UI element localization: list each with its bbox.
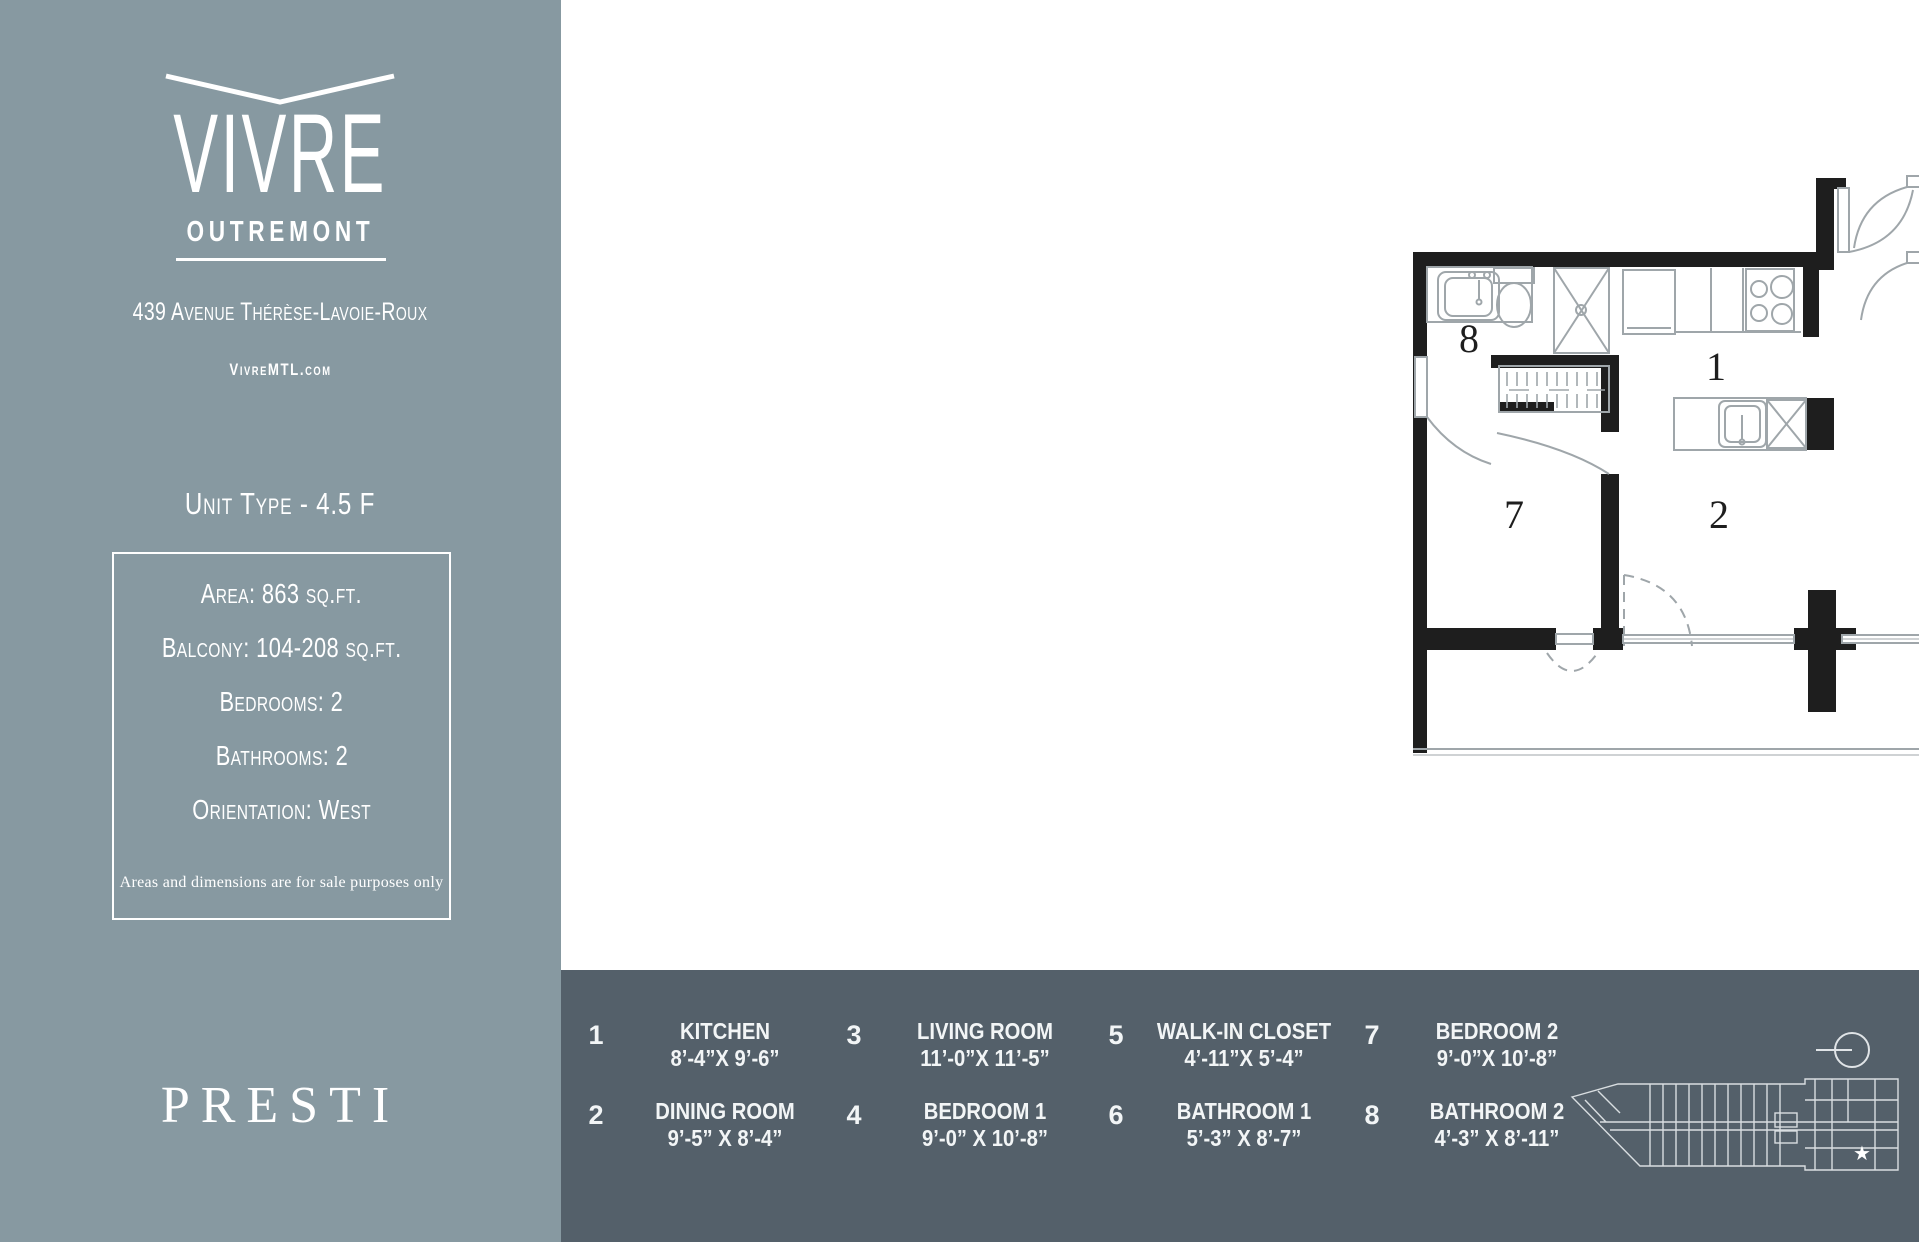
legend-room-name: BEDROOM 2 <box>1402 1018 1592 1045</box>
legend-item-dining-room: 2DINING ROOM9’-5” X 8’-4” <box>579 1098 837 1178</box>
legend-info: KITCHEN8’-4”X 9’-6” <box>626 1018 823 1072</box>
room-label-kitchen: 1 <box>1706 344 1726 389</box>
legend-item-living-room: 3LIVING ROOM11’-0”X 11’-5” <box>837 1018 1099 1098</box>
room-label-dining: 2 <box>1709 492 1729 537</box>
spec-bedrooms: Bedrooms: 2 <box>114 686 449 718</box>
legend-room-name: BEDROOM 1 <box>885 1098 1086 1125</box>
spec-area: Area: 863 sq.ft. <box>114 578 449 610</box>
legend-number: 1 <box>579 1018 613 1051</box>
spec-box: Area: 863 sq.ft. Balcony: 104-208 sq.ft.… <box>112 552 451 920</box>
legend-item-walk-in-closet: 5WALK-IN CLOSET4’-11”X 5’-4” <box>1099 1018 1355 1098</box>
room-label-bathroom2: 8 <box>1459 316 1479 361</box>
spec-balcony: Balcony: 104-208 sq.ft. <box>114 632 449 664</box>
legend-item-kitchen: 1KITCHEN8’-4”X 9’-6” <box>579 1018 837 1098</box>
legend-info: DINING ROOM9’-5” X 8’-4” <box>626 1098 823 1152</box>
legend-room-dimensions: 4’-11”X 5’-4” <box>1146 1045 1341 1072</box>
building-footprint <box>1572 1079 1898 1170</box>
legend-room-name: LIVING ROOM <box>885 1018 1086 1045</box>
unit-location-star-icon: ★ <box>1853 1143 1871 1165</box>
floor-plan-drawing: 1 2 3 4 5 6 7 8 <box>1406 148 1919 788</box>
legend-info: LIVING ROOM11’-0”X 11’-5” <box>885 1018 1086 1072</box>
legend-room-name: KITCHEN <box>626 1018 823 1045</box>
legend-info: BATHROOM 24’-3” X 8’-11” <box>1402 1098 1592 1152</box>
legend-room-dimensions: 9’-0”X 10’-8” <box>1402 1045 1592 1072</box>
legend-info: WALK-IN CLOSET4’-11”X 5’-4” <box>1146 1018 1341 1072</box>
address: 439 Avenue Thérèse-Lavoie-Roux <box>0 298 561 327</box>
legend-number: 7 <box>1355 1018 1389 1051</box>
legend-number: 8 <box>1355 1098 1389 1131</box>
sidebar: VIVRE OUTREMONT 439 Avenue Thérèse-Lavoi… <box>0 0 561 1242</box>
legend-footer: 1KITCHEN8’-4”X 9’-6”3LIVING ROOM11’-0”X … <box>561 970 1919 1242</box>
floor-plan-area: 1 2 3 4 5 6 7 8 <box>561 0 1919 970</box>
legend-number: 4 <box>837 1098 871 1131</box>
legend-room-dimensions: 4’-3” X 8’-11” <box>1402 1125 1592 1152</box>
legend-grid: 1KITCHEN8’-4”X 9’-6”3LIVING ROOM11’-0”X … <box>579 1018 1605 1178</box>
legend-room-dimensions: 8’-4”X 9’-6” <box>626 1045 823 1072</box>
legend-room-dimensions: 9’-5” X 8’-4” <box>626 1125 823 1152</box>
plan-room-numbers: 1 2 3 4 5 6 7 8 <box>1459 226 1919 537</box>
logo-title: VIVRE <box>0 98 561 210</box>
disclaimer: Areas and dimensions are for sale purpos… <box>114 874 449 892</box>
legend-room-name: BATHROOM 2 <box>1402 1098 1592 1125</box>
legend-room-dimensions: 5’-3” X 8’-7” <box>1146 1125 1341 1152</box>
legend-room-name: BATHROOM 1 <box>1146 1098 1341 1125</box>
website-link[interactable]: VivreMTL.com <box>0 360 561 380</box>
legend-number: 6 <box>1099 1098 1133 1131</box>
legend-item-bedroom-1: 4BEDROOM 19’-0” X 10’-8” <box>837 1098 1099 1178</box>
unit-type-title: Unit Type - 4.5 F <box>0 486 561 522</box>
legend-item-bathroom-1: 6BATHROOM 15’-3” X 8’-7” <box>1099 1098 1355 1178</box>
spec-orientation: Orientation: West <box>114 794 449 826</box>
legend-room-dimensions: 9’-0” X 10’-8” <box>885 1125 1086 1152</box>
legend-room-name: DINING ROOM <box>626 1098 823 1125</box>
legend-info: BEDROOM 29’-0”X 10’-8” <box>1402 1018 1592 1072</box>
legend-number: 3 <box>837 1018 871 1051</box>
logo-rule <box>176 258 386 261</box>
legend-number: 5 <box>1099 1018 1133 1051</box>
legend-item-bedroom-2: 7BEDROOM 29’-0”X 10’-8” <box>1355 1018 1605 1098</box>
legend-info: BEDROOM 19’-0” X 10’-8” <box>885 1098 1086 1152</box>
spec-bathrooms: Bathrooms: 2 <box>114 740 449 772</box>
legend-room-name: WALK-IN CLOSET <box>1146 1018 1341 1045</box>
legend-item-bathroom-2: 8BATHROOM 24’-3” X 8’-11” <box>1355 1098 1605 1178</box>
room-label-bedroom2: 7 <box>1504 492 1524 537</box>
legend-info: BATHROOM 15’-3” X 8’-7” <box>1146 1098 1341 1152</box>
brochure-page: VIVRE OUTREMONT 439 Avenue Thérèse-Lavoi… <box>0 0 1919 1242</box>
legend-number: 2 <box>579 1098 613 1131</box>
legend-room-dimensions: 11’-0”X 11’-5” <box>885 1045 1086 1072</box>
logo-subtitle: OUTREMONT <box>0 216 561 249</box>
developer-brand: PRESTI <box>0 1076 561 1135</box>
site-plan-thumbnail: ★ <box>1570 1010 1919 1242</box>
